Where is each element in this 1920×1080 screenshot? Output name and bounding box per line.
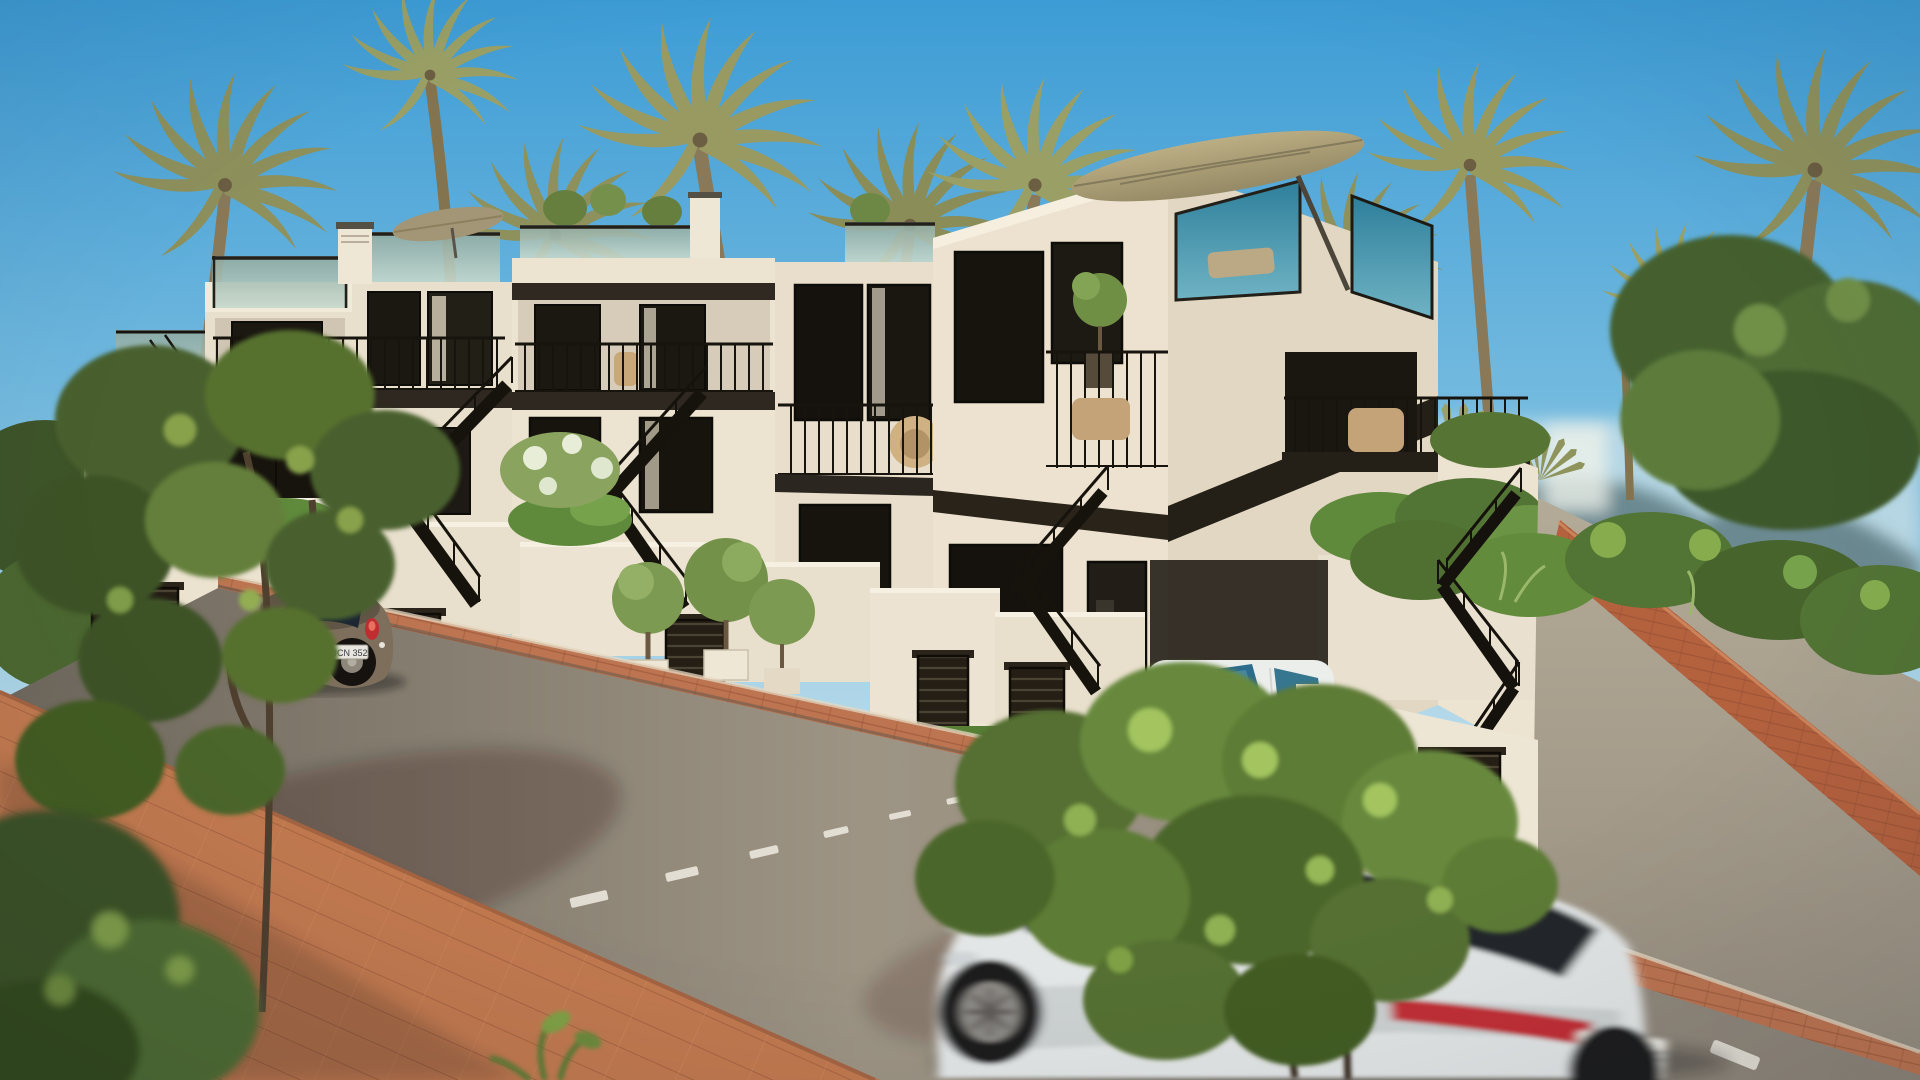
render-scene: UCN 352 GC 708P bbox=[0, 0, 1920, 1080]
vignette bbox=[0, 0, 1920, 1080]
